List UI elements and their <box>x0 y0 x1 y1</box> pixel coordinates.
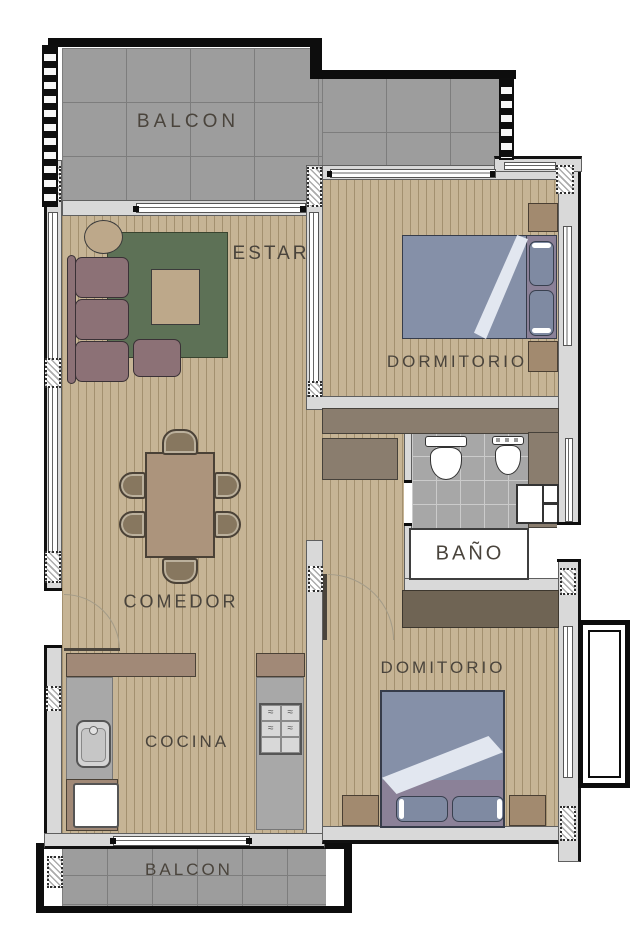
wall-bottom-bedroom-second <box>322 826 559 844</box>
glass-partition-living-bedroom <box>309 212 319 384</box>
nightstand <box>528 341 558 372</box>
bath-door-opening <box>404 480 412 526</box>
pillow-cap <box>532 243 551 248</box>
dining-chair <box>119 472 146 499</box>
door-cap <box>300 206 306 212</box>
dining-table <box>145 452 215 558</box>
pillow-cap <box>497 799 502 819</box>
coffee-table <box>151 269 200 325</box>
burner-icon: ≈ <box>261 705 281 721</box>
room-label-bedroom-second: DOMITORIO <box>381 658 506 678</box>
balcony-top-floor-right <box>322 78 510 168</box>
window-bedroom-second-right <box>563 626 573 778</box>
balcony-bottom-rail-bottom <box>36 906 352 913</box>
room-label-kitchen: COCINA <box>145 732 229 752</box>
hall-floor-patch <box>306 408 323 542</box>
nightstand <box>342 795 379 826</box>
balcony-bottom-rail-top <box>325 843 352 849</box>
toilet-tank <box>425 436 467 447</box>
dining-chair <box>214 472 241 499</box>
window-bath-right <box>565 438 573 522</box>
room-label-bedroom-main: DORMITORIO <box>387 352 527 372</box>
balcony-railing-right <box>499 78 514 160</box>
burner-icon: ≈ <box>281 705 301 721</box>
boundary-top <box>48 38 320 47</box>
window-opening-right <box>557 522 581 562</box>
balcony-railing-left <box>42 45 58 207</box>
window-corner-slot <box>504 162 556 170</box>
nightstand <box>528 203 558 232</box>
kitchen-cabinet <box>66 653 196 677</box>
sofa-cushion <box>75 299 129 340</box>
room-label-balcony-top: BALCON <box>137 111 239 133</box>
burner-icon <box>281 737 301 753</box>
column <box>560 568 576 595</box>
door-leaf-entry <box>64 648 120 651</box>
dining-chair <box>162 429 198 455</box>
room-label-dining: COMEDOR <box>124 592 239 613</box>
column <box>47 856 63 888</box>
stove: ≈≈ ≈≈ <box>259 703 302 755</box>
bidet-knob <box>505 438 509 442</box>
sofa-cushion <box>75 341 129 382</box>
closet-hallway <box>322 438 398 480</box>
entry-door-opening <box>44 588 62 648</box>
sliding-door-living-balcony <box>136 203 306 213</box>
column <box>560 806 576 841</box>
room-label-bathroom: BAÑO <box>436 543 505 566</box>
sliding-door-bedroom-balcony <box>330 169 496 178</box>
side-table <box>84 220 123 254</box>
bed-main-duvet <box>402 235 528 339</box>
pillow-cap <box>532 328 551 333</box>
column <box>308 381 322 397</box>
nightstand <box>509 795 546 826</box>
ottoman <box>133 339 181 377</box>
pillow-cap <box>399 799 404 819</box>
burner-icon <box>261 737 281 753</box>
burner-icon: ≈ <box>281 721 301 737</box>
fridge <box>73 783 119 828</box>
sofa-cushion <box>75 257 129 298</box>
sliding-door-kitchen-balcony <box>113 836 250 846</box>
door-cap <box>110 838 116 844</box>
dining-chair <box>214 511 241 538</box>
shower-handle <box>544 502 557 505</box>
closet-row <box>322 408 559 434</box>
column <box>556 165 574 194</box>
kitchen-cabinet <box>256 653 305 677</box>
column <box>45 551 61 583</box>
window-bedroom-main-right <box>563 226 572 346</box>
kitchen-faucet <box>89 726 98 735</box>
wardrobe-bedroom-second <box>402 590 559 628</box>
burner-icon: ≈ <box>261 721 281 737</box>
room-label-balcony-bottom: BALCON <box>145 860 233 880</box>
column <box>308 566 323 592</box>
door-leaf-bedroom-second <box>323 574 327 640</box>
door-cap <box>246 838 252 844</box>
door-cap <box>133 206 139 212</box>
side-ledge-inner <box>588 630 621 778</box>
door-cap <box>327 171 332 177</box>
boundary-top-right <box>316 70 516 79</box>
bidet-knob <box>496 438 500 442</box>
dining-chair <box>162 558 198 584</box>
bidet-knob <box>514 438 518 442</box>
column <box>45 358 61 388</box>
dining-chair <box>119 511 146 538</box>
door-cap <box>490 171 495 177</box>
balcony-bottom-rail-left <box>36 843 44 913</box>
balcony-bottom-rail-right <box>344 843 352 913</box>
column <box>307 167 322 207</box>
floor-plan: ≈≈ ≈≈ <box>0 0 633 950</box>
room-label-living: ESTAR <box>233 243 310 265</box>
column <box>46 686 61 711</box>
